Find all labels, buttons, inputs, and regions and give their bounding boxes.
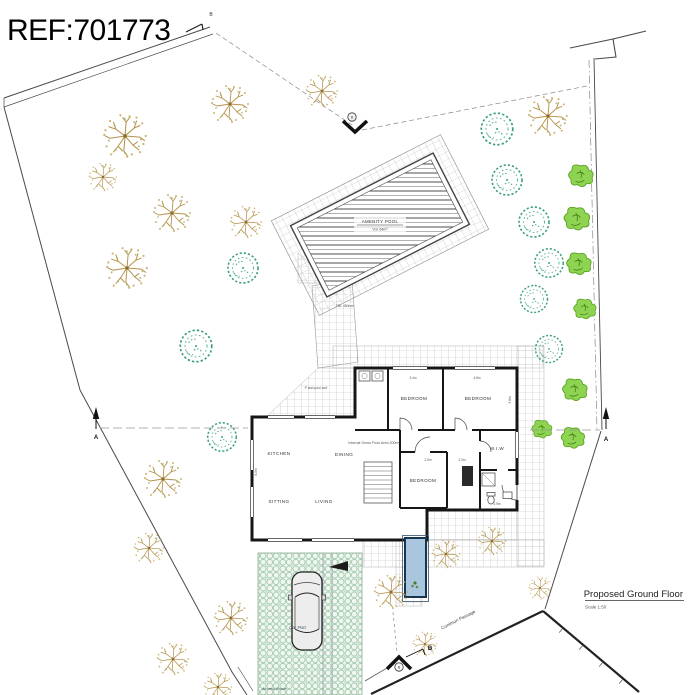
reference-number: REF:701773 <box>7 14 170 47</box>
car-port: Car Port Access Route <box>258 553 362 695</box>
section-a-label: A <box>94 435 99 441</box>
room-label-kitchen: KITCHEN <box>268 451 291 456</box>
dim-label: 4.8m <box>473 376 480 380</box>
room-label-wiw: W.I.W <box>490 446 505 451</box>
amenity-pool: AMENITY POOL Vol: 64m³ <box>271 135 488 316</box>
section-b-label: B <box>428 646 433 652</box>
dim-label: 3.4m <box>409 376 416 380</box>
dim-label: 6.0m <box>254 468 258 475</box>
dim-label: 2.9m <box>493 502 500 506</box>
title-block: Proposed Ground Floor Scale 1:50 <box>584 589 684 610</box>
pool-volume-label: Vol: 64m³ <box>372 228 388 232</box>
floor-area-note: Internal Gross Floor Area 200m² <box>348 441 400 445</box>
room-label-dining: DINING <box>335 452 354 457</box>
site-plan-svg: AMENITY POOL Vol: 64m³ Car Port Access R… <box>0 0 694 695</box>
dim-label: 2.3m <box>458 458 465 462</box>
section-b-label: B <box>209 12 213 18</box>
access-route-label: Access Route <box>261 686 287 691</box>
path-level-note: TBL 450mm <box>336 304 355 308</box>
pool-surround-note: P and pool surf <box>305 386 328 390</box>
common-passage-label: Common Passage <box>440 609 476 631</box>
room-label-bedroom3: BEDROOM <box>410 478 437 483</box>
car-port-label: Car Port <box>289 625 307 630</box>
stairs <box>364 462 392 503</box>
car <box>289 572 326 650</box>
site-plan: AMENITY POOL Vol: 64m³ Car Port Access R… <box>0 0 694 695</box>
room-label-living: LIVING <box>315 499 332 504</box>
dim-label: 3.8m <box>508 396 512 403</box>
drawing-scale: Scale 1:50 <box>585 605 607 610</box>
cylinder <box>462 466 473 486</box>
sink <box>503 492 512 499</box>
dim-label: 2.5m <box>424 458 431 462</box>
pool-name-label: AMENITY POOL <box>362 219 399 224</box>
section-a-label: A <box>604 437 609 443</box>
drawing-title: Proposed Ground Floor <box>584 589 683 600</box>
room-label-bedroom1: BEDROOM <box>401 396 428 401</box>
room-label-bedroom2: BEDROOM <box>465 396 492 401</box>
room-label-sitting: SITTING <box>269 499 290 504</box>
